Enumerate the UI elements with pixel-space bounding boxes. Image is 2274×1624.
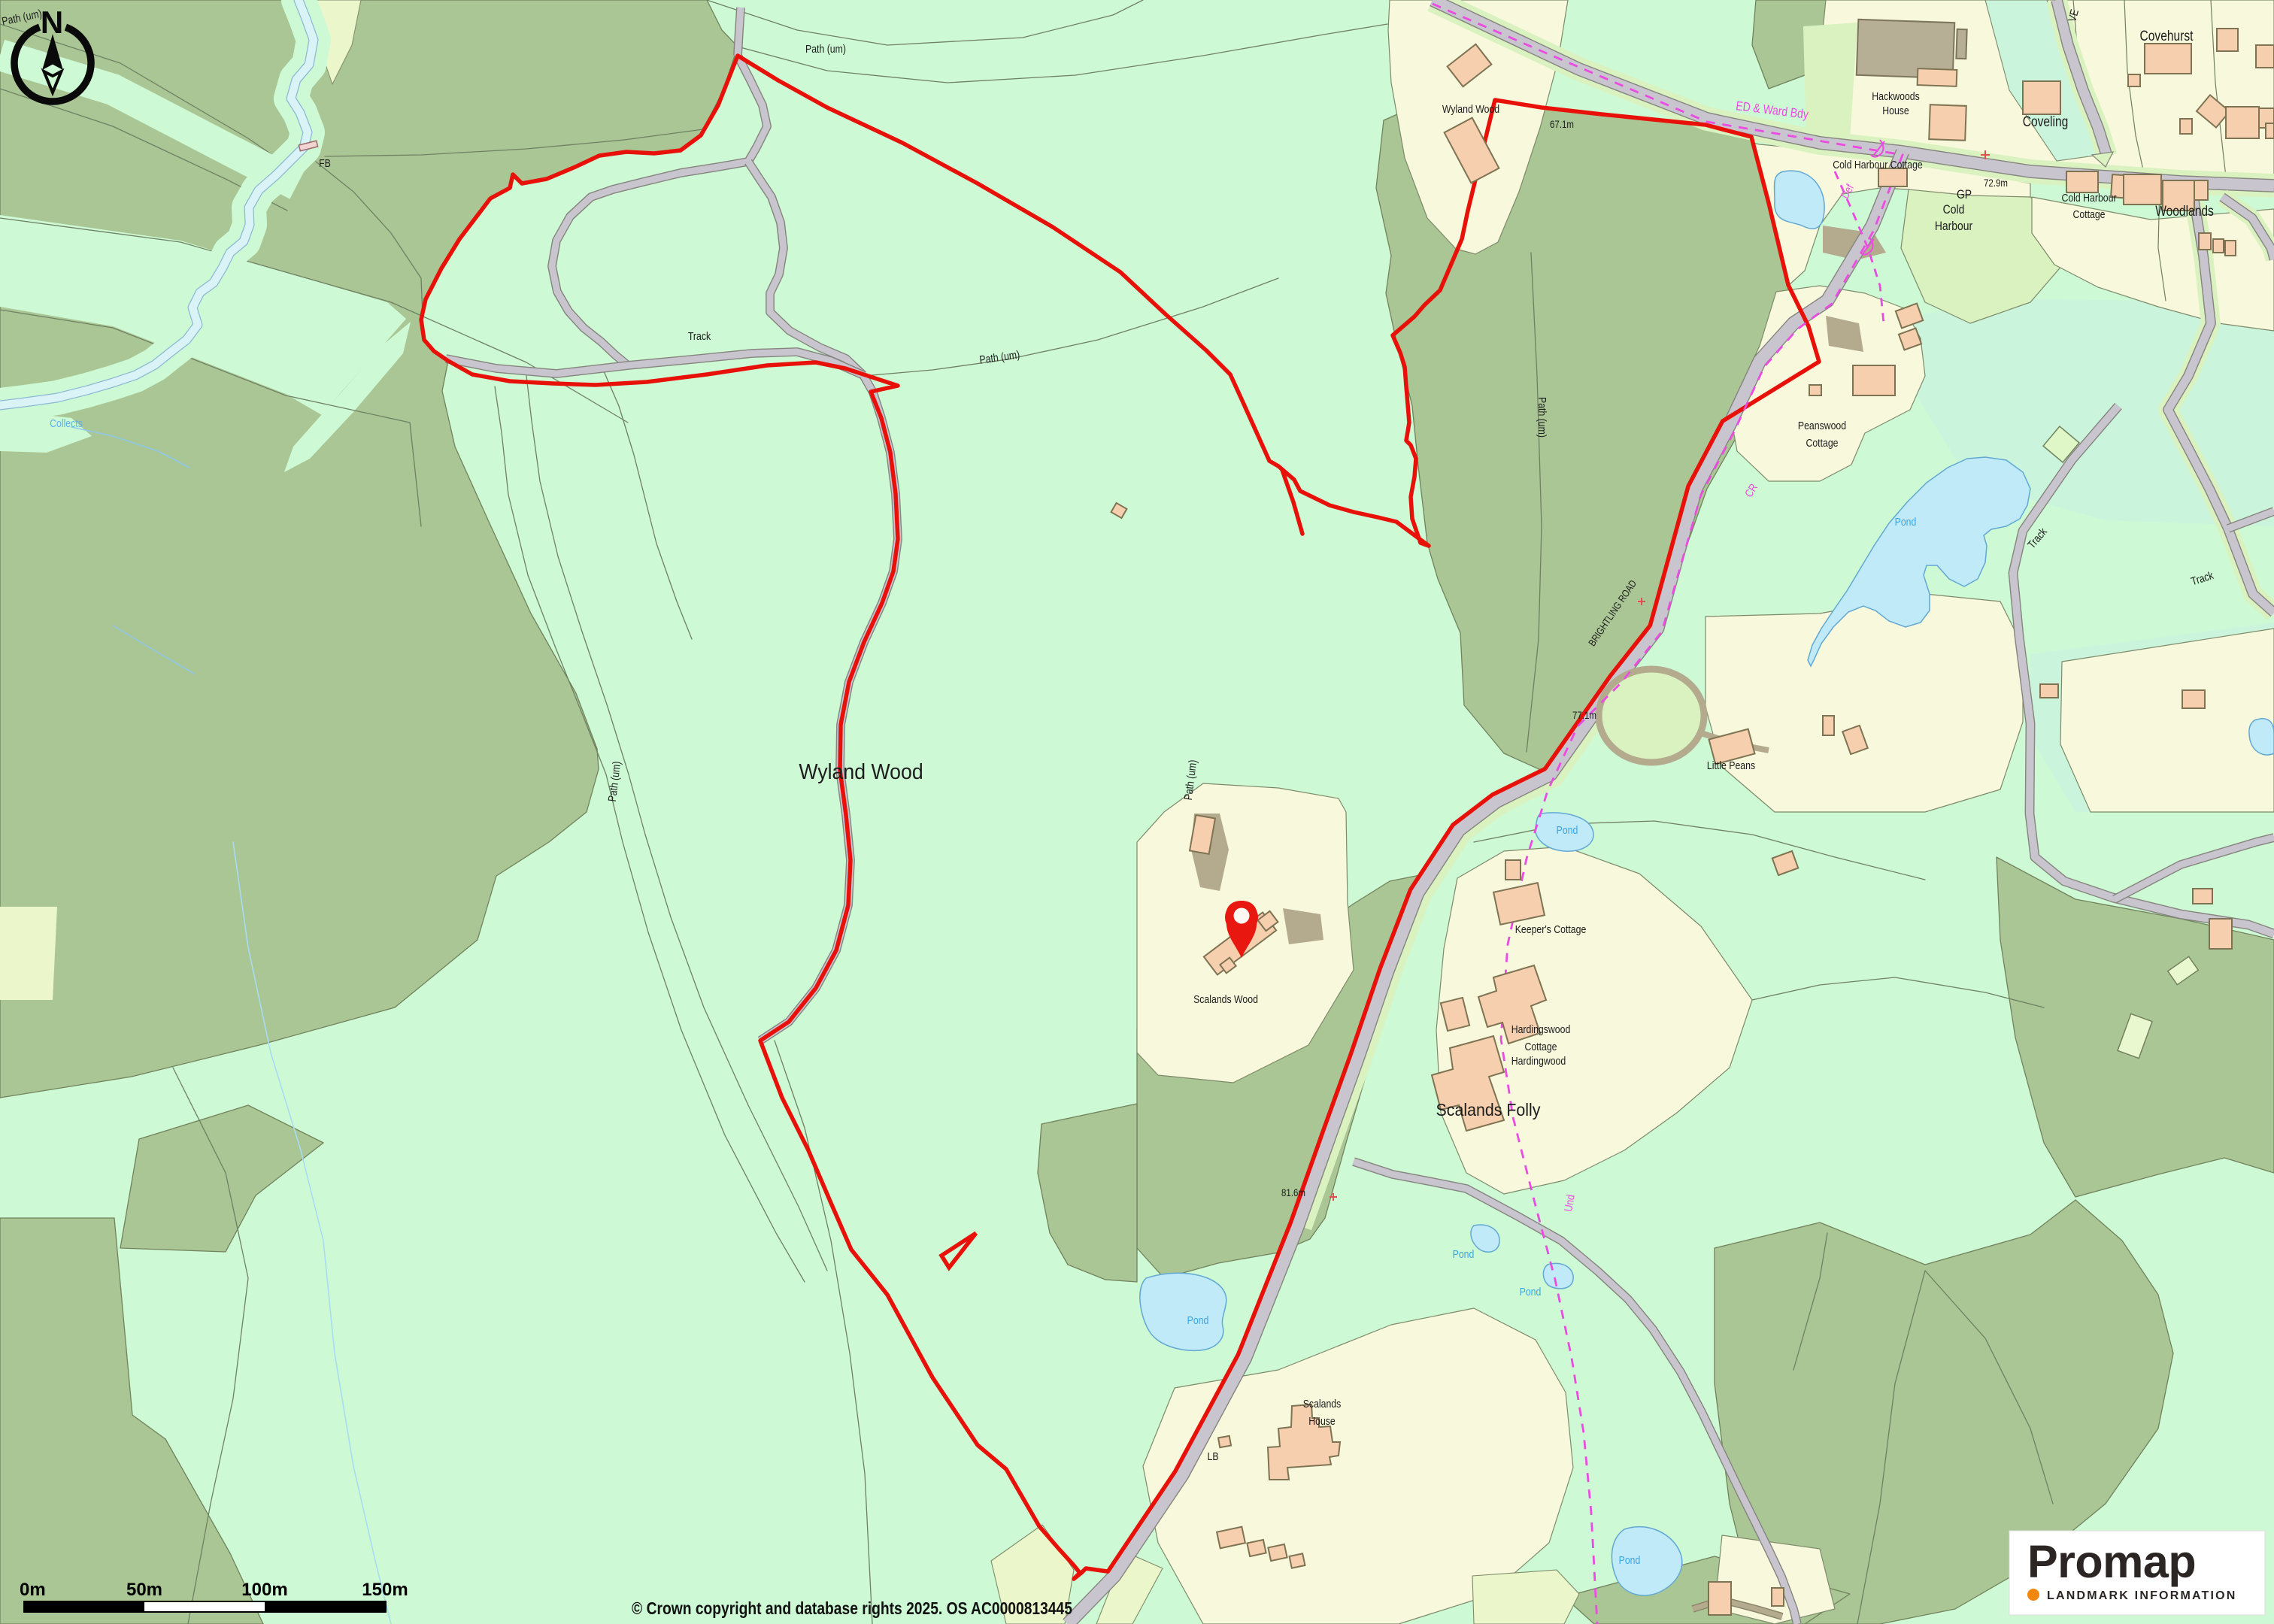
svg-text:Pond: Pond <box>1895 516 1917 528</box>
svg-text:Path (um): Path (um) <box>805 43 846 55</box>
svg-text:Path (um): Path (um) <box>1536 397 1548 438</box>
svg-text:Track: Track <box>688 330 711 342</box>
svg-text:N: N <box>41 5 63 40</box>
svg-text:100m: 100m <box>241 1580 287 1600</box>
svg-text:77.1m: 77.1m <box>1572 709 1596 721</box>
svg-text:© Crown copyright and database: © Crown copyright and database rights 20… <box>632 1598 1072 1618</box>
svg-text:Scalands: Scalands <box>1303 1398 1342 1410</box>
svg-text:Cold: Cold <box>1943 203 1965 217</box>
svg-text:Wyland Wood: Wyland Wood <box>1442 103 1499 115</box>
svg-text:0m: 0m <box>20 1580 46 1600</box>
svg-text:Collects: Collects <box>50 417 83 429</box>
svg-text:Cold Harbour Cottage: Cold Harbour Cottage <box>1833 159 1923 171</box>
svg-text:Pond: Pond <box>1520 1286 1542 1298</box>
svg-text:Hackwoods: Hackwoods <box>1872 90 1920 102</box>
svg-text:House: House <box>1882 105 1909 117</box>
svg-text:Hardingswood: Hardingswood <box>1511 1023 1571 1035</box>
svg-text:50m: 50m <box>126 1580 162 1600</box>
svg-text:Pond: Pond <box>1187 1314 1209 1326</box>
svg-text:Wyland Wood: Wyland Wood <box>799 759 923 783</box>
svg-text:Harbour: Harbour <box>1935 220 1972 234</box>
svg-text:Keeper's Cottage: Keeper's Cottage <box>1515 923 1587 935</box>
svg-text:Covehurst: Covehurst <box>2140 28 2194 44</box>
svg-text:Promap: Promap <box>2027 1536 2196 1587</box>
svg-text:LB: LB <box>1207 1450 1218 1462</box>
svg-text:Pond: Pond <box>1619 1554 1641 1566</box>
svg-text:72.9m: 72.9m <box>1984 177 2008 189</box>
svg-text:FB: FB <box>319 157 331 169</box>
svg-text:House: House <box>1308 1415 1336 1427</box>
svg-text:Peanswood: Peanswood <box>1798 420 1846 432</box>
svg-text:Cold Harbour: Cold Harbour <box>2061 192 2116 204</box>
svg-text:Little Peans: Little Peans <box>1707 759 1755 771</box>
svg-text:LANDMARK INFORMATION: LANDMARK INFORMATION <box>2047 1589 2237 1602</box>
svg-text:Coveling: Coveling <box>2023 114 2069 130</box>
svg-text:Scalands Folly: Scalands Folly <box>1436 1100 1542 1120</box>
svg-text:Cottage: Cottage <box>1524 1041 1557 1053</box>
svg-text:Woodlands: Woodlands <box>2155 203 2214 220</box>
svg-text:Pond: Pond <box>1453 1248 1475 1260</box>
svg-text:GP: GP <box>1957 188 1972 202</box>
svg-text:Cottage: Cottage <box>2072 208 2105 220</box>
svg-text:Pond: Pond <box>1557 824 1578 836</box>
svg-text:Scalands Wood: Scalands Wood <box>1193 993 1258 1005</box>
svg-text:67.1m: 67.1m <box>1550 118 1574 130</box>
svg-text:Cottage: Cottage <box>1806 437 1838 449</box>
svg-text:150m: 150m <box>362 1580 408 1600</box>
svg-text:Hardingwood: Hardingwood <box>1511 1055 1566 1067</box>
svg-text:81.6m: 81.6m <box>1281 1186 1305 1198</box>
